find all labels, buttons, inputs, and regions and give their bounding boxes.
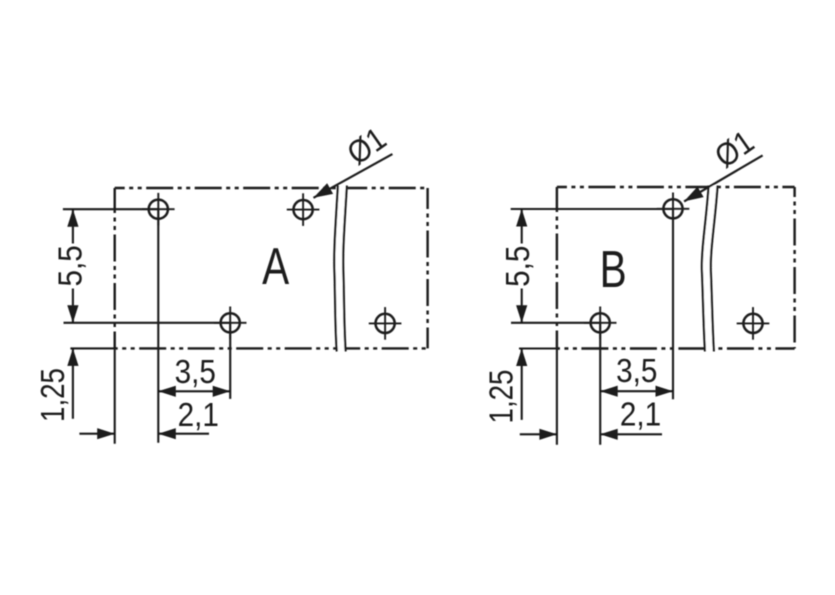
svg-text:Ø1: Ø1: [708, 124, 760, 175]
svg-text:5,5: 5,5: [499, 246, 536, 287]
svg-text:B: B: [600, 240, 627, 298]
svg-text:3,5: 3,5: [175, 354, 216, 391]
svg-text:A: A: [262, 237, 289, 295]
svg-text:2,1: 2,1: [620, 396, 661, 433]
svg-text:1,25: 1,25: [483, 370, 520, 424]
svg-text:3,5: 3,5: [616, 352, 657, 389]
svg-text:1,25: 1,25: [35, 368, 72, 422]
svg-text:Ø1: Ø1: [341, 121, 393, 172]
svg-text:5,5: 5,5: [52, 245, 89, 286]
svg-text:2,1: 2,1: [178, 397, 219, 434]
